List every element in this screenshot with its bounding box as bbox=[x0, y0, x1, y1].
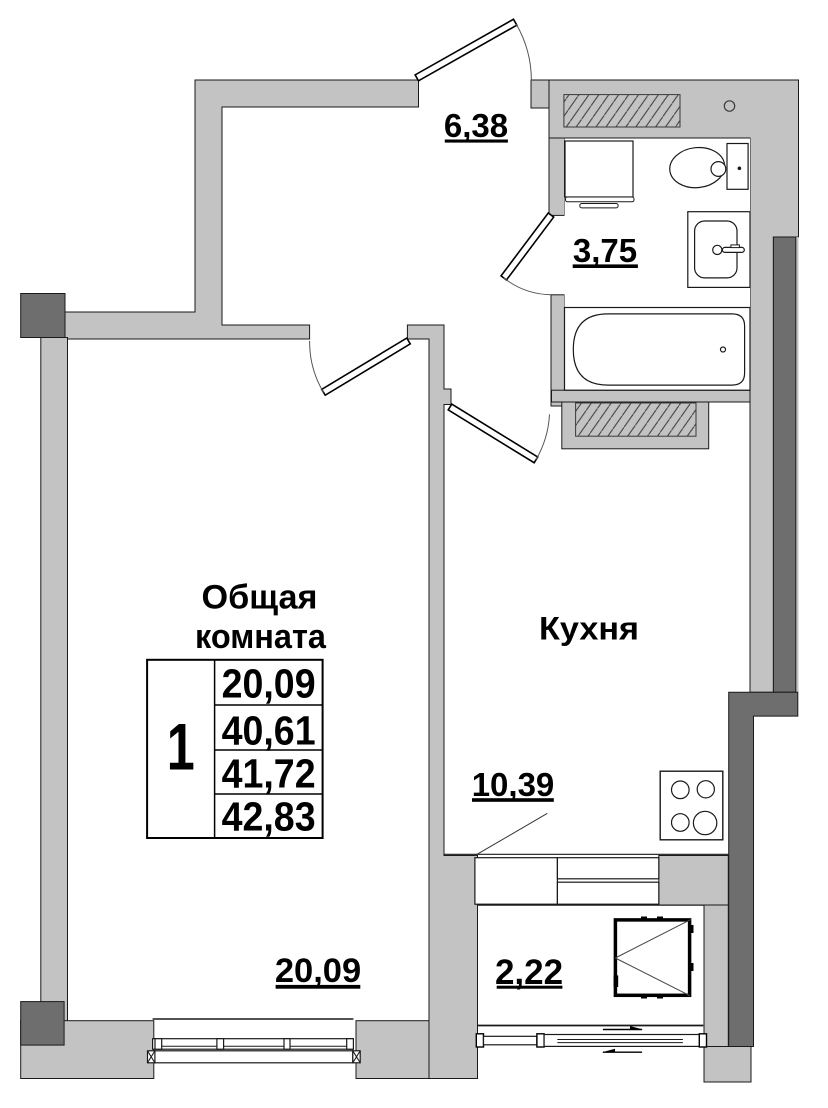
svg-text:20,09: 20,09 bbox=[222, 661, 316, 707]
svg-text:41,72: 41,72 bbox=[222, 750, 316, 796]
svg-text:1: 1 bbox=[167, 710, 195, 784]
svg-text:6,38: 6,38 bbox=[444, 107, 508, 144]
svg-text:Кухня: Кухня bbox=[539, 611, 639, 647]
svg-text:3,75: 3,75 bbox=[573, 232, 637, 269]
svg-text:комната: комната bbox=[195, 618, 327, 656]
svg-text:42,83: 42,83 bbox=[222, 793, 316, 839]
svg-text:20,09: 20,09 bbox=[275, 952, 361, 990]
svg-text:Общая: Общая bbox=[202, 579, 318, 617]
svg-text:10,39: 10,39 bbox=[472, 766, 555, 803]
svg-text:40,61: 40,61 bbox=[222, 708, 316, 754]
